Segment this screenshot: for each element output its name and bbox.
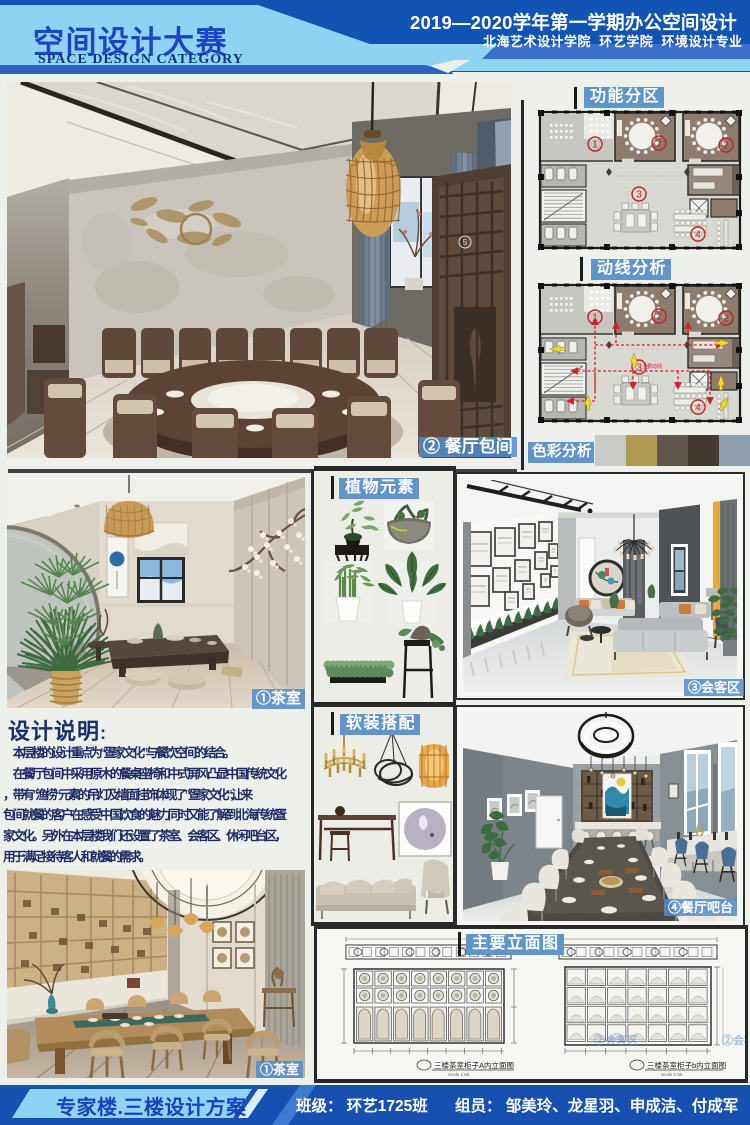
svg-text:4: 4 xyxy=(695,230,701,241)
svg-text:2: 2 xyxy=(656,312,662,323)
svg-text:②会客区: ②会客区 xyxy=(594,1033,638,1047)
svg-text:Scale 1:50: Scale 1:50 xyxy=(661,1072,683,1077)
svg-text:4: 4 xyxy=(695,403,701,414)
svg-text:5: 5 xyxy=(463,238,468,247)
svg-text:三楼茶室柜子A内立面图: 三楼茶室柜子A内立面图 xyxy=(434,1060,514,1070)
svg-text:2: 2 xyxy=(656,139,662,150)
svg-text:3: 3 xyxy=(636,190,642,201)
svg-text:2: 2 xyxy=(723,314,729,325)
svg-text:1: 1 xyxy=(592,140,598,151)
svg-text:三楼茶室柜子b内立面图: 三楼茶室柜子b内立面图 xyxy=(647,1060,726,1070)
svg-text:Scale 1:50: Scale 1:50 xyxy=(448,1072,470,1077)
svg-text:2: 2 xyxy=(723,141,729,152)
svg-text:主要动线: 主要动线 xyxy=(642,363,662,370)
